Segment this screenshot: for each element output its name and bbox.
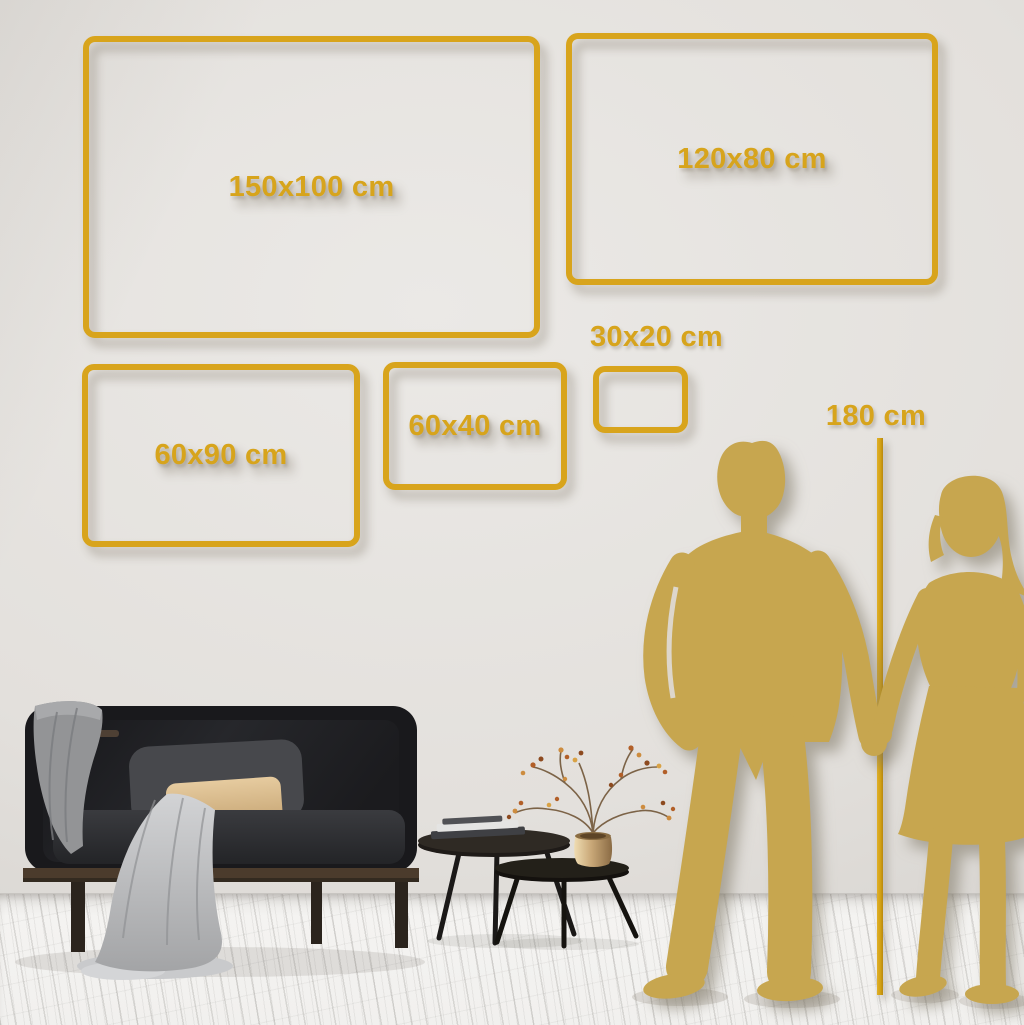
man-silhouette xyxy=(642,441,887,1003)
size-label-60x90: 60x90 cm xyxy=(154,441,287,470)
seat-cushion xyxy=(53,810,405,864)
couple-silhouette xyxy=(640,435,1024,1010)
skirt xyxy=(898,686,1024,845)
sofa-leg xyxy=(311,882,322,944)
size-label-30x20: 30x20 cm xyxy=(590,323,723,352)
size-label-120x80: 120x80 cm xyxy=(677,145,826,174)
size-label-150x100: 150x100 cm xyxy=(229,173,395,202)
height-reference-label: 180 cm xyxy=(796,402,956,431)
size-frame-60x90: 60x90 cm xyxy=(82,364,360,547)
size-frame-150x100: 150x100 cm xyxy=(83,36,540,338)
woman-silhouette xyxy=(870,476,1024,1004)
size-frame-120x80: 120x80 cm xyxy=(566,33,938,285)
sofa xyxy=(5,690,435,990)
size-frame-30x20 xyxy=(593,366,688,433)
size-label-60x40: 60x40 cm xyxy=(408,412,541,441)
sofa-leg xyxy=(395,882,408,948)
brass-vase xyxy=(574,832,612,867)
size-frame-60x40: 60x40 cm xyxy=(383,362,567,490)
sofa-leg xyxy=(71,882,85,952)
